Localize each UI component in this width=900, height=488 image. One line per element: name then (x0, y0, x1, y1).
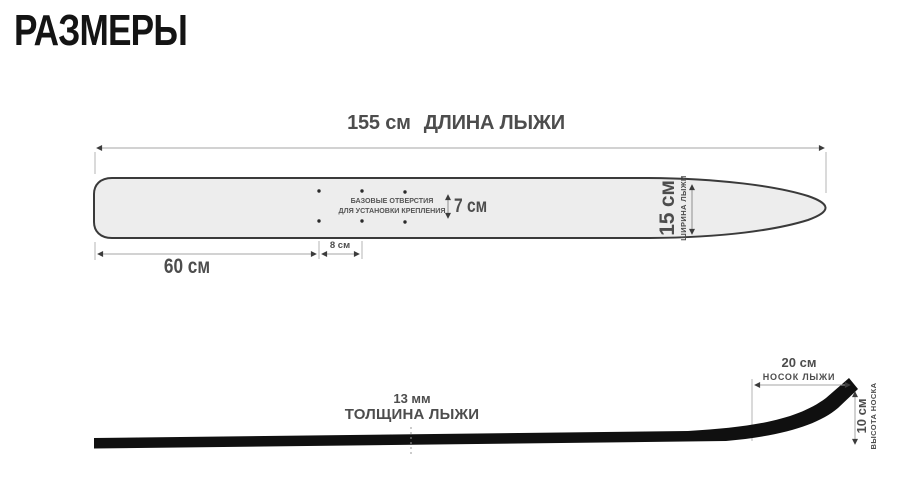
ski-thickness-caption: ТОЛЩИНА ЛЫЖИ (312, 407, 512, 424)
mounting-hole (360, 189, 363, 192)
ski-thickness-label: 13 мм ТОЛЩИНА ЛЫЖИ (312, 392, 512, 424)
mounting-hole (403, 190, 406, 193)
ski-dimensions-diagram: РАЗМЕРЫ (0, 0, 900, 488)
ski-width-value: 15 см (657, 180, 678, 235)
ski-tip-length-value: 20 см (724, 356, 874, 370)
holes-col-gap-label: 8 см (318, 241, 362, 251)
mounting-hole (403, 220, 406, 223)
tail-to-holes-label: 60 см (146, 255, 228, 278)
ski-thickness-value: 13 мм (312, 392, 512, 406)
ski-tip-length-caption: НОСОК ЛЫЖИ (724, 373, 874, 383)
ski-length-caption: ДЛИНА ЛЫЖИ (424, 112, 565, 134)
mounting-hole (360, 219, 363, 222)
ski-length-dimension-label: 155 смДЛИНА ЛЫЖИ (346, 112, 566, 134)
ski-width-dimension-label: 15 см ШИРИНА ЛЫЖИ (657, 175, 688, 240)
ski-tip-height-caption: ВЫСОТА НОСКА (870, 383, 878, 450)
ski-length-value: 155 см (347, 112, 411, 134)
mounting-hole (317, 219, 320, 222)
ski-tip-length-label: 20 см НОСОК ЛЫЖИ (724, 356, 874, 383)
mounting-hole (317, 189, 320, 192)
ski-tip-height-value: 10 см (855, 399, 868, 434)
mounting-holes-note-line1: БАЗОВЫЕ ОТВЕРСТИЯ (335, 196, 449, 206)
mounting-holes-note: БАЗОВЫЕ ОТВЕРСТИЯ ДЛЯ УСТАНОВКИ КРЕПЛЕНИ… (335, 196, 449, 216)
ski-width-caption: ШИРИНА ЛЫЖИ (680, 175, 688, 240)
ski-tip-height-label: 10 см ВЫСОТА НОСКА (855, 383, 878, 450)
holes-row-gap-label: 7 см (454, 197, 487, 218)
mounting-holes-note-line2: ДЛЯ УСТАНОВКИ КРЕПЛЕНИЯ (335, 206, 449, 216)
